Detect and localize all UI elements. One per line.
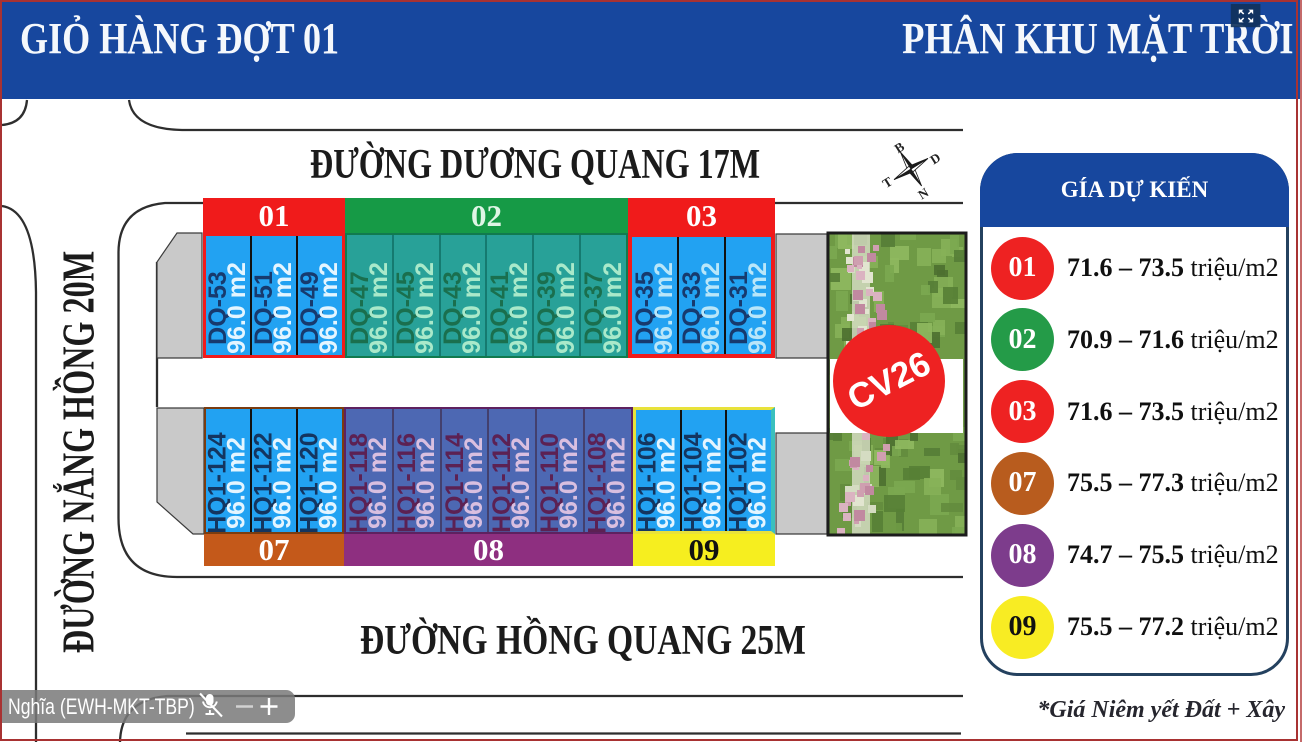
svg-text:D: D: [927, 150, 943, 168]
svg-text:N: N: [915, 184, 931, 202]
svg-text:B: B: [892, 139, 908, 156]
svg-text:T: T: [880, 174, 896, 191]
